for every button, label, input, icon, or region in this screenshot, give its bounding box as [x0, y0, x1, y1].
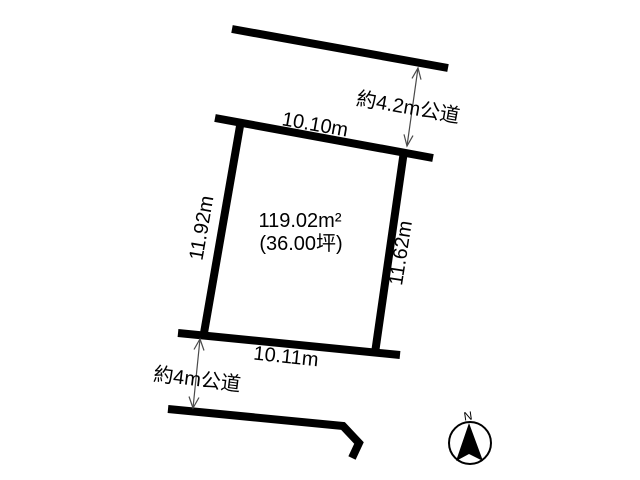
- compass: N: [449, 408, 491, 464]
- plot-area-tsubo-label: (36.00坪): [259, 232, 342, 255]
- top-road-width-label: 約4.2m公道: [355, 87, 462, 128]
- bottom-road-line: [168, 409, 359, 458]
- top-road-line: [232, 29, 448, 68]
- left-edge-dimension-label: 11.92m: [186, 194, 219, 262]
- compass-needle-icon: [456, 423, 483, 461]
- north-label: N: [463, 408, 474, 423]
- diagram-canvas: 10.10m 約4.2m公道 11.92m 11.62m 119.02m² (3…: [0, 0, 640, 480]
- plot-area-label: 119.02m²: [258, 210, 341, 232]
- land-plot-diagram: 10.10m 約4.2m公道 11.92m 11.62m 119.02m² (3…: [0, 0, 640, 480]
